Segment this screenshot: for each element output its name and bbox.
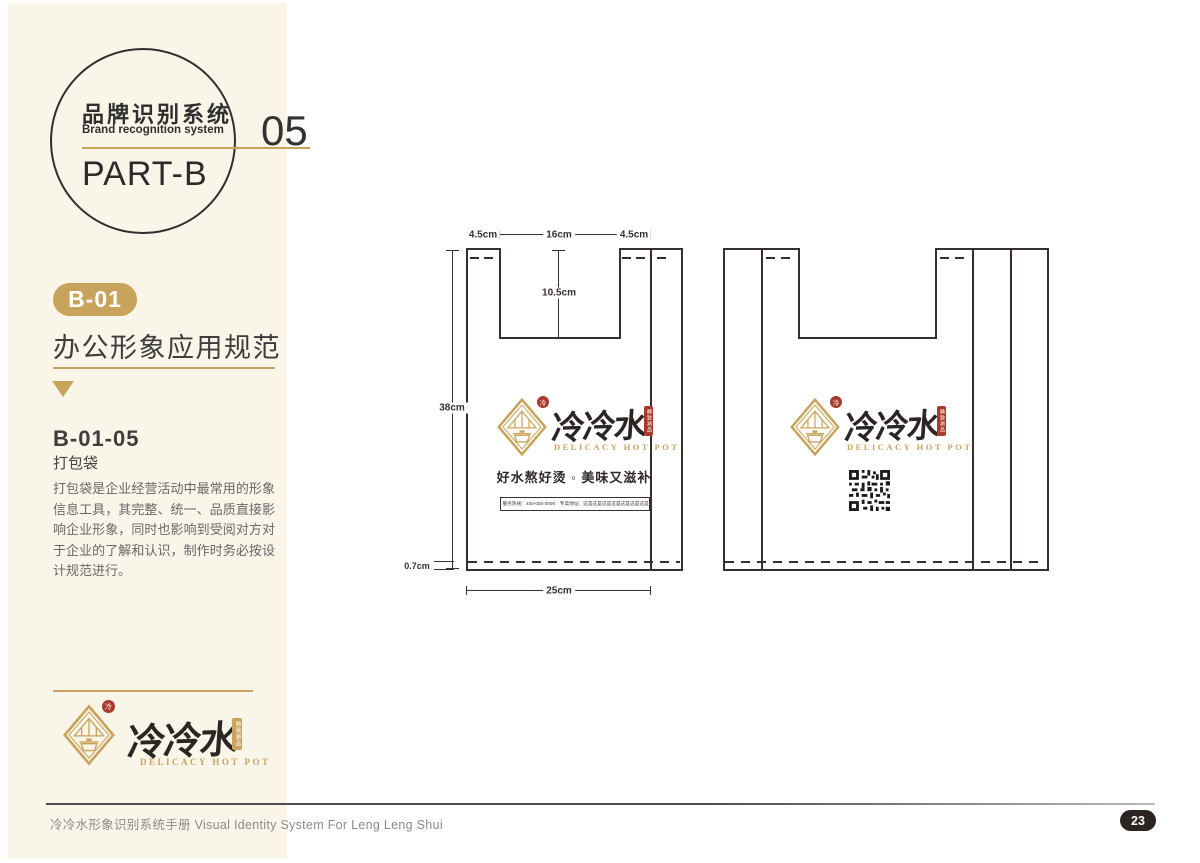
bag-gusset-line	[1010, 248, 1012, 571]
brand-name-en: DELICACY HOT POT	[140, 757, 271, 767]
vertical-seal-icon: 精致涮品	[937, 406, 946, 436]
bag-logo: 冷 冷冷水 精致涮品 DELICACY HOT POT	[787, 396, 953, 460]
round-seal-icon: 冷	[830, 396, 842, 408]
bag-outline	[499, 337, 621, 339]
bag-logo: 冷 冷冷水 精致涮品 DELICACY HOT POT	[494, 396, 660, 460]
dim-bottom-fold: 0.7cm	[401, 561, 433, 571]
dimension-cap	[446, 250, 459, 251]
vertical-seal-icon: 精致涮品	[644, 406, 653, 436]
fold-dash	[766, 257, 775, 259]
brand-logo: 冷 冷冷水 精致涮品 DELICACY HOT POT	[50, 698, 260, 782]
dimension-tick	[650, 586, 651, 595]
dim-mouth: 16cm	[543, 230, 575, 241]
bag-gusset-line	[972, 248, 974, 571]
footer-divider	[46, 803, 1155, 805]
dim-handle-right: 4.5cm	[617, 230, 651, 241]
chapter-title-en: Brand recognition system	[82, 124, 224, 136]
bag-outline	[935, 248, 1049, 250]
dim-notch-depth: 10.5cm	[539, 288, 579, 299]
chapter-circle	[50, 48, 236, 234]
fold-dash	[955, 257, 964, 259]
item-title: 打包袋	[53, 452, 98, 473]
bag-outline	[499, 248, 501, 339]
page-number-badge: 23	[1120, 810, 1156, 831]
chapter-part-label: PART-B	[82, 155, 208, 194]
item-code: B-01-05	[53, 426, 139, 452]
dimension-tick	[466, 586, 467, 595]
dim-handle-left: 4.5cm	[466, 230, 500, 241]
fold-dash	[622, 257, 631, 259]
fold-dash	[470, 257, 479, 259]
fold-dash	[484, 257, 493, 259]
bag-info-text: 服务热线：400-000-0000 专卖地址：这是这是这是这是这是这是这是这是这…	[501, 502, 650, 507]
brand-name-en: DELICACY HOT POT	[554, 442, 642, 452]
section-heading: 办公形象应用规范	[53, 326, 281, 365]
bag-outline	[619, 248, 621, 339]
bag-outline	[798, 337, 937, 339]
round-seal-icon: 冷	[537, 396, 549, 408]
section-number: 05	[261, 107, 308, 155]
vi-manual-page: 品牌识别系统 Brand recognition system PART-B 0…	[0, 0, 1200, 863]
bag-gusset-line	[761, 248, 763, 571]
bag-outline	[681, 248, 683, 571]
bag-outline	[1047, 248, 1049, 571]
footer-title: 冷冷水形象识别系统手册 Visual Identity System For L…	[50, 814, 443, 833]
bag-tagline: 好水熬好烫 ◦ 美味又滋补	[484, 467, 664, 486]
dimension-cap	[552, 250, 565, 251]
bag-outline	[466, 248, 501, 250]
bag-outline	[723, 248, 725, 571]
fold-dash	[636, 257, 645, 259]
section-badge: B-01	[53, 283, 137, 316]
triangle-down-icon	[52, 381, 74, 397]
bag-outline	[935, 248, 937, 339]
dim-bag-height: 38cm	[436, 403, 468, 414]
dimension-cap	[434, 561, 454, 562]
vertical-seal-icon: 精致涮品	[232, 718, 242, 750]
fold-dash	[940, 257, 949, 259]
section-divider	[53, 367, 275, 369]
round-seal-icon: 冷	[102, 700, 115, 713]
bottom-fold-dashed-line	[725, 561, 1045, 563]
dim-bag-width: 25cm	[543, 586, 575, 597]
bag-outline	[466, 569, 683, 571]
item-description: 打包袋是企业经营活动中最常用的形象信息工具，其完整、统一、品质直接影响企业形象，…	[53, 479, 275, 582]
brand-name-en: DELICACY HOT POT	[847, 442, 935, 452]
bag-outline	[798, 248, 800, 339]
logo-divider	[53, 690, 253, 692]
bottom-fold-dashed-line	[468, 561, 680, 563]
bag-outline	[723, 569, 1049, 571]
fold-dash	[657, 257, 666, 259]
qr-code	[849, 470, 890, 511]
dimension-cap	[434, 569, 454, 570]
bag-info-box: 服务热线：400-000-0000 专卖地址：这是这是这是这是这是这是这是这是这…	[500, 497, 650, 511]
fold-dash	[781, 257, 790, 259]
